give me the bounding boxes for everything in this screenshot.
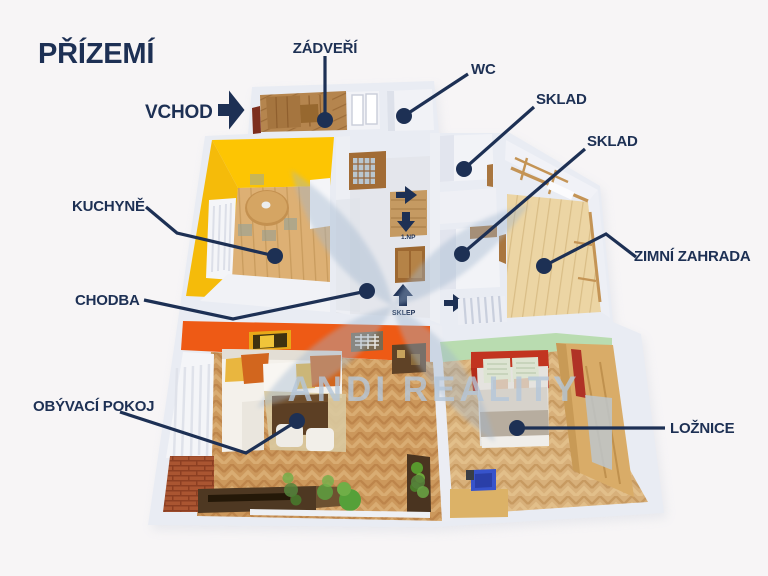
svg-text:VCHOD: VCHOD: [145, 102, 213, 123]
svg-text:ANDI REALITY: ANDI REALITY: [288, 370, 581, 409]
svg-text:ZÁDVEŘÍ: ZÁDVEŘÍ: [293, 39, 358, 57]
svg-text:WC: WC: [471, 61, 496, 78]
svg-text:SKLAD: SKLAD: [536, 91, 587, 108]
svg-text:CHODBA: CHODBA: [75, 292, 140, 309]
svg-text:OBÝVACÍ POKOJ: OBÝVACÍ POKOJ: [33, 397, 154, 415]
svg-text:1.NP: 1.NP: [401, 234, 416, 241]
svg-text:ZIMNÍ ZAHRADA: ZIMNÍ ZAHRADA: [634, 248, 751, 265]
svg-text:PŘÍZEMÍ: PŘÍZEMÍ: [38, 36, 155, 70]
svg-text:KUCHYNĚ: KUCHYNĚ: [72, 197, 145, 215]
svg-text:LOŽNICE: LOŽNICE: [670, 419, 735, 437]
svg-text:SKLAD: SKLAD: [587, 133, 638, 150]
